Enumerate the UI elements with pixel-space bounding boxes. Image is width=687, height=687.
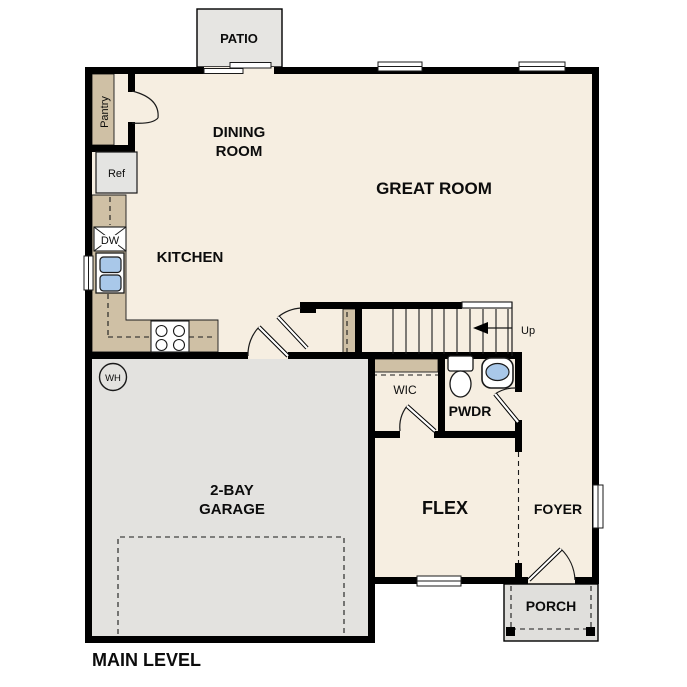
- ref-label: Ref: [108, 168, 126, 180]
- wall-pwdr-foyer-lower: [515, 420, 522, 452]
- wh-label: WH: [105, 373, 121, 384]
- wall-closet-divider: [355, 309, 362, 359]
- floorplan-drawing: PATIO DINING ROOM GREAT ROOM KITCHEN Pan…: [0, 0, 687, 687]
- window-great-room-1: [378, 62, 422, 71]
- wic-shelf: [372, 359, 438, 372]
- dining-room-label-line1: DINING: [213, 124, 266, 141]
- kitchen-sink: [96, 253, 124, 293]
- garage-area: [92, 359, 368, 641]
- up-label: Up: [521, 325, 535, 337]
- toilet: [448, 356, 473, 397]
- wic-label: WIC: [393, 383, 417, 397]
- dining-room-label-line2: ROOM: [216, 143, 263, 160]
- wall-flex-foyer-lower: [515, 563, 522, 584]
- stair-open-rail: [462, 302, 512, 308]
- opening-garage-entry: [248, 352, 288, 359]
- window-foyer: [593, 485, 603, 528]
- pantry-label: Pantry: [99, 96, 111, 128]
- wall-wic-pwdr-divider: [438, 352, 445, 438]
- wall-bottom-garage: [85, 636, 375, 643]
- wall-pwdr-foyer-upper: [515, 352, 522, 392]
- garage-label-line1: 2-BAY: [210, 482, 254, 499]
- opening-wic-door: [400, 431, 434, 438]
- wall-stairs-top: [300, 302, 462, 309]
- pwdr-label: PWDR: [449, 403, 492, 419]
- garage-label-line2: GARAGE: [199, 501, 265, 518]
- wall-pantry-bottom: [85, 145, 135, 152]
- porch-label: PORCH: [526, 598, 577, 614]
- window-flex: [417, 576, 461, 586]
- opening-front-door: [528, 577, 575, 584]
- porch-post-right: [586, 627, 595, 636]
- foyer-label: FOYER: [534, 501, 582, 517]
- wall-garage-right: [368, 352, 375, 643]
- flex-label: FLEX: [422, 498, 468, 518]
- window-great-room-2: [519, 62, 565, 71]
- wall-flex-top: [368, 431, 522, 438]
- plan-title: MAIN LEVEL: [92, 650, 201, 670]
- wall-closet-door-stop: [300, 302, 316, 313]
- great-room-label: GREAT ROOM: [376, 179, 492, 198]
- patio-label: PATIO: [220, 31, 258, 46]
- floorplan-main-level: PATIO DINING ROOM GREAT ROOM KITCHEN Pan…: [0, 0, 687, 687]
- dw-label: DW: [101, 235, 120, 247]
- pwdr-sink: [482, 358, 513, 388]
- window-kitchen-sink: [84, 256, 93, 290]
- stair-closet-shelf: [343, 309, 356, 355]
- wall-pantry-right-lower: [128, 122, 135, 152]
- wall-pantry-right-upper: [128, 67, 135, 92]
- cooktop: [151, 321, 189, 352]
- kitchen-label: KITCHEN: [157, 249, 224, 266]
- porch-post-left: [506, 627, 515, 636]
